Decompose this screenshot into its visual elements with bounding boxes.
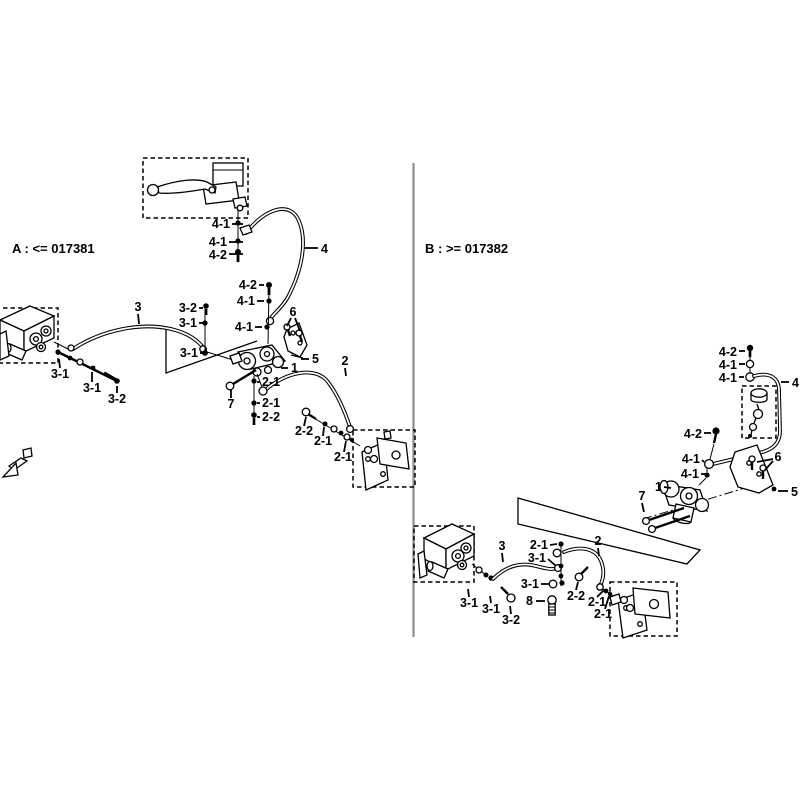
part-callout-b-3-1: 3-1 (528, 551, 546, 565)
part-callout-a-5: 5 (312, 352, 319, 366)
callout-leader-line (502, 553, 503, 562)
brake-tube-3-b (472, 564, 561, 581)
part-callout-a-1: 1 (291, 361, 298, 375)
callout-leader-line (664, 487, 671, 488)
wheel-cylinder-b (610, 582, 677, 638)
callout-leader-line (345, 368, 346, 376)
callout-leader-line (702, 460, 704, 462)
part-callout-a-3-2: 3-2 (179, 301, 197, 315)
part-callout-a-4-1: 4-1 (235, 320, 253, 334)
pump-assembly-b (414, 524, 474, 582)
parts-diagram-page: A : <= 017381 B : >= 017382 (0, 0, 800, 800)
bolt-7-a (226, 370, 256, 390)
bolt-washer-column-2-a (251, 376, 257, 425)
callout-leader-line (138, 314, 139, 324)
part-callout-b-2-2: 2-2 (567, 589, 585, 603)
part-callout-a-2-2: 2-2 (262, 410, 280, 424)
part-callout-a-2-1: 2-1 (314, 434, 332, 448)
part-callout-b-4-1: 4-1 (681, 467, 699, 481)
part-callout-a-4: 4 (321, 242, 328, 256)
part-callout-b-8: 8 (526, 594, 533, 608)
part-callout-a-3-1: 3-1 (83, 381, 101, 395)
part-callout-b-4-2: 4-2 (719, 345, 737, 359)
part-callout-b-3: 3 (499, 539, 506, 553)
part-callout-b-4-2: 4-2 (684, 427, 702, 441)
part-callout-b-7: 7 (639, 489, 646, 503)
part-callout-b-1: 1 (655, 480, 662, 494)
part-callout-a-3: 3 (135, 300, 142, 314)
wheel-cylinder-a (353, 430, 415, 490)
part-callout-b-2-1: 2-1 (530, 538, 548, 552)
callout-leader-line (642, 503, 644, 512)
reservoir-linkage-box-b (742, 386, 776, 438)
part-callout-b-6: 6 (775, 450, 782, 464)
bolt-washer-column-41-mid-a (264, 282, 272, 344)
part-callout-b-3-1: 3-1 (460, 596, 478, 610)
part-callout-a-2-1: 2-1 (262, 375, 280, 389)
part-callout-a-4-2: 4-2 (239, 278, 257, 292)
bracket-5-b (730, 445, 776, 493)
part-callout-a-2: 2 (342, 354, 349, 368)
part-callout-b-2: 2 (595, 534, 602, 548)
part-callout-b-5: 5 (791, 485, 798, 499)
part-callout-a-4-2: 4-2 (209, 248, 227, 262)
part-callout-a-2-2: 2-2 (295, 424, 313, 438)
part-callout-b-4-1: 4-1 (719, 371, 737, 385)
bolt-washer-column-4-mid-b (699, 427, 720, 485)
callout-leader-line (598, 548, 599, 556)
part-callout-a-3-1: 3-1 (180, 346, 198, 360)
part-callout-a-3-2: 3-2 (108, 392, 126, 406)
part-callout-b-4: 4 (792, 376, 799, 390)
part-callout-a-4-1: 4-1 (237, 294, 255, 308)
part-callout-a-2-1: 2-1 (334, 450, 352, 464)
part-callout-b-4-1: 4-1 (682, 452, 700, 466)
section-a-title: A : <= 017381 (12, 241, 95, 256)
direction-arrow-icon (3, 448, 32, 477)
part-callout-a-3-1: 3-1 (179, 316, 197, 330)
pump-assembly-a (0, 306, 58, 363)
bolt-32-b (501, 587, 515, 602)
part-callout-a-7: 7 (228, 397, 235, 411)
part-callout-a-4-1: 4-1 (209, 235, 227, 249)
valve-assembly-1-a (207, 345, 285, 376)
part-callout-a-3-1: 3-1 (51, 367, 69, 381)
brake-piping-diagram: A : <= 017381 B : >= 017382 (0, 0, 800, 800)
callout-leader-line (548, 559, 556, 566)
callout-leader-line (765, 461, 773, 470)
part-callout-b-3-1: 3-1 (521, 577, 539, 591)
part-callout-b-3-2: 3-2 (502, 613, 520, 627)
section-b-title: B : >= 017382 (425, 241, 508, 256)
part-callout-a-2-1: 2-1 (262, 396, 280, 410)
part-callout-a-6: 6 (290, 305, 297, 319)
bolt-8-b (548, 596, 556, 615)
part-callout-b-3-1: 3-1 (482, 602, 500, 616)
callout-leader-line (550, 544, 557, 545)
master-cylinder-assembly-a (143, 158, 248, 218)
part-callout-b-4-1: 4-1 (719, 358, 737, 372)
part-callout-a-4-1: 4-1 (212, 217, 230, 231)
part-callout-b-2-1: 2-1 (594, 607, 612, 621)
